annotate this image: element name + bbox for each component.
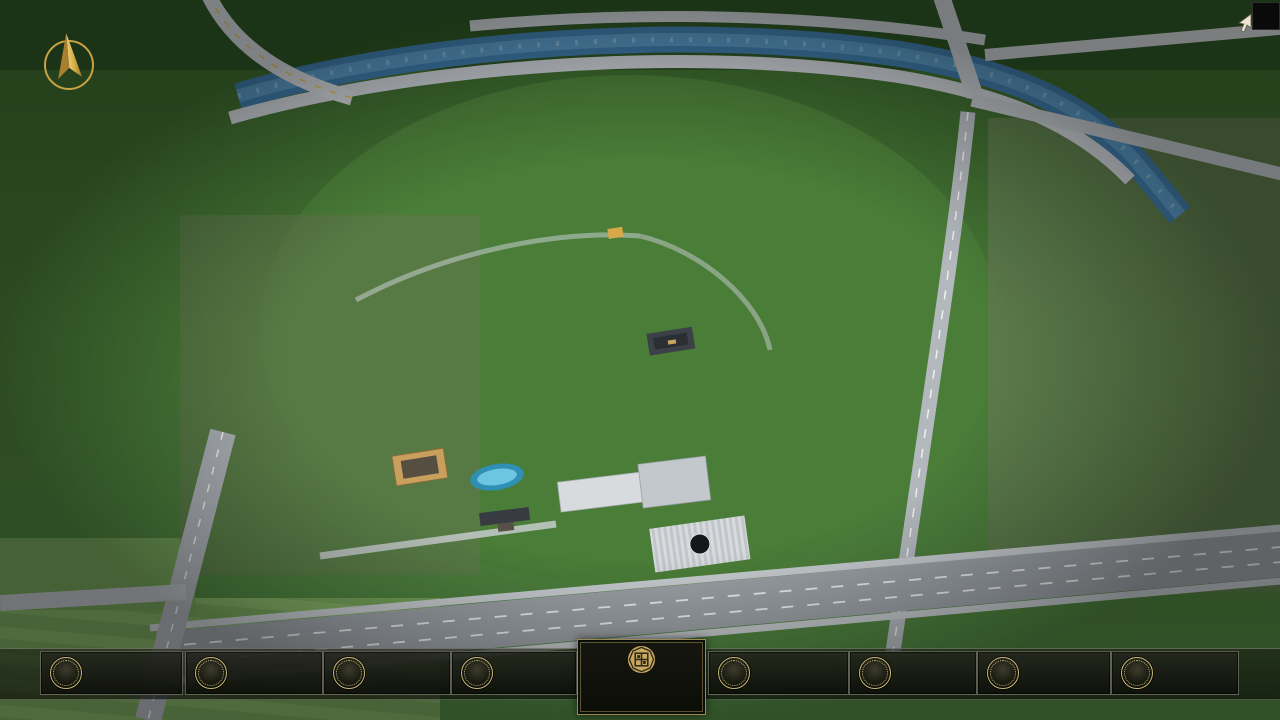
master-plan-map[interactable] <box>0 0 1280 720</box>
menu-item-garden-landscape[interactable] <box>708 651 849 695</box>
bottom-menu-bar <box>0 648 1280 700</box>
menu-item-brand-intro[interactable] <box>40 651 183 695</box>
project-logo-panel[interactable] <box>577 639 706 715</box>
menu-item-one-home-one-view[interactable] <box>1111 651 1239 695</box>
compass-icon <box>36 28 102 98</box>
menu-item-architecture-appreciation[interactable] <box>451 651 577 695</box>
menu-item-number-badge <box>333 657 365 689</box>
presentation-stage <box>0 0 1280 720</box>
menu-item-number-badge <box>859 657 891 689</box>
menu-item-number-badge <box>195 657 227 689</box>
menu-item-floorplan-distribution[interactable] <box>977 651 1111 695</box>
menu-item-number-badge <box>461 657 493 689</box>
compass-north-indicator <box>36 28 102 98</box>
menu-item-number-badge <box>50 657 82 689</box>
menu-item-number-badge <box>718 657 750 689</box>
menu-item-location-value[interactable] <box>185 651 323 695</box>
close-button[interactable] <box>1252 2 1280 30</box>
project-seal-icon <box>627 645 656 674</box>
menu-item-number-badge <box>987 657 1019 689</box>
menu-item-interior-experience[interactable] <box>849 651 977 695</box>
menu-item-project-overview[interactable] <box>323 651 451 695</box>
menu-item-number-badge <box>1121 657 1153 689</box>
